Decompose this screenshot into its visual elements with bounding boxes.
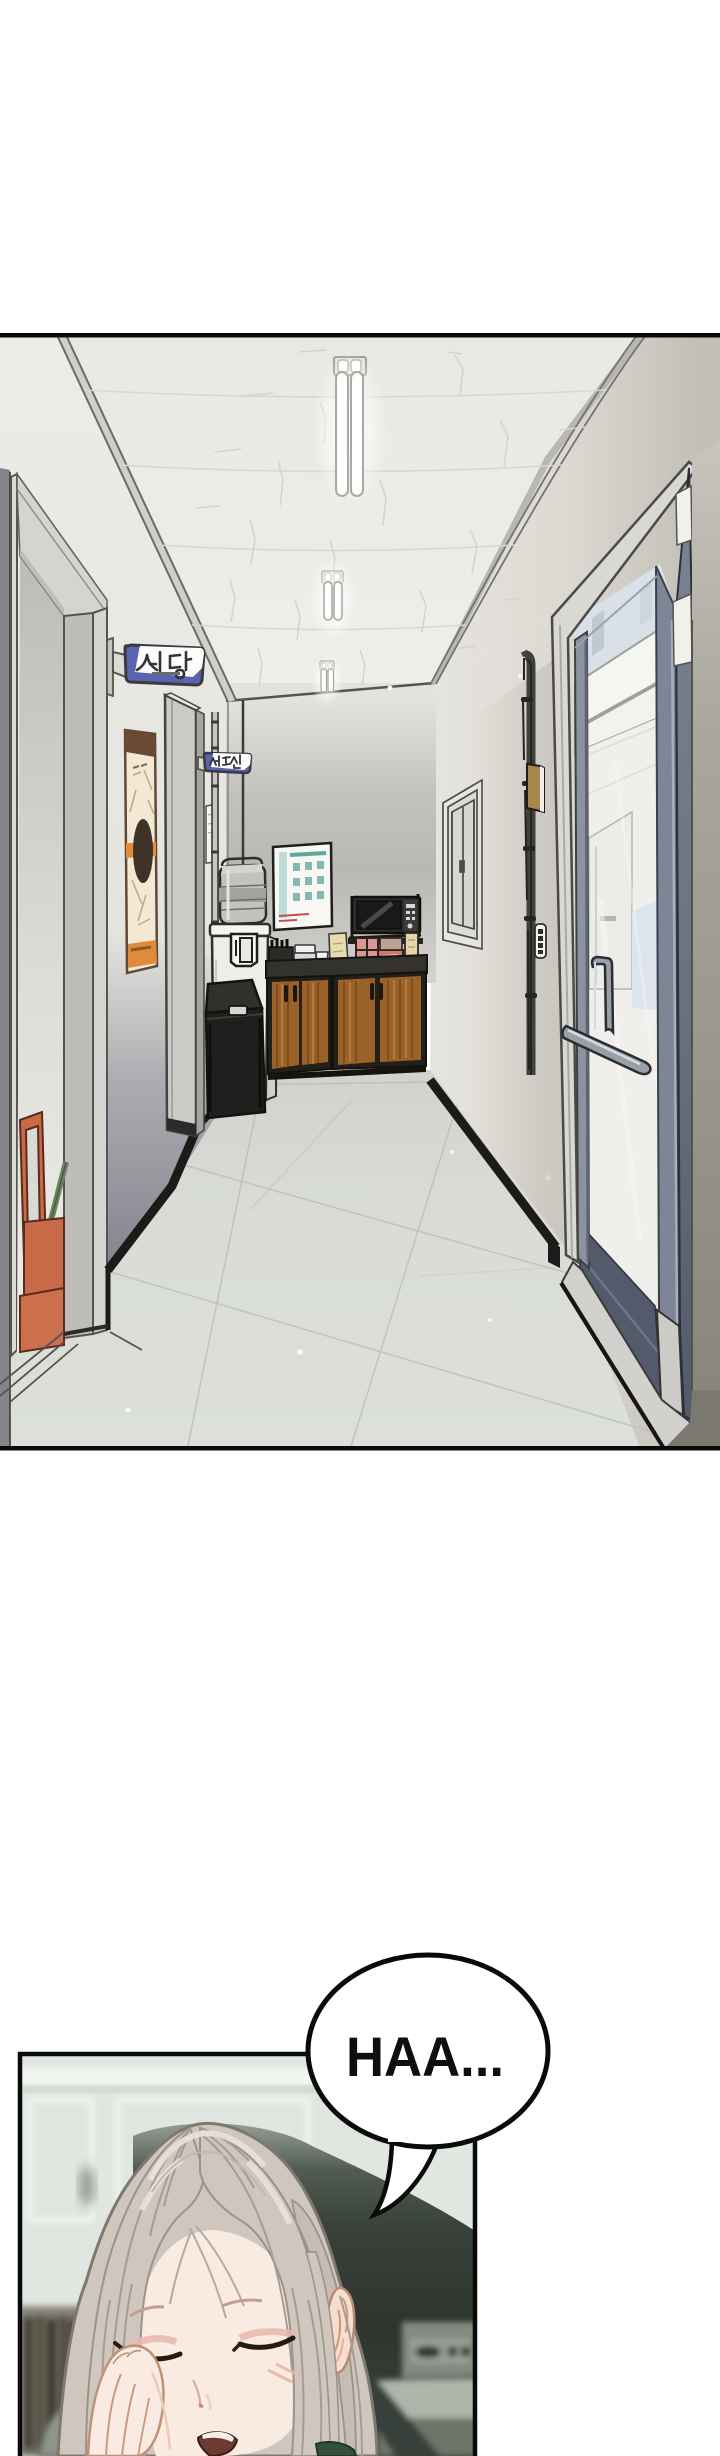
svg-text:HAA...: HAA... xyxy=(346,2025,504,2088)
